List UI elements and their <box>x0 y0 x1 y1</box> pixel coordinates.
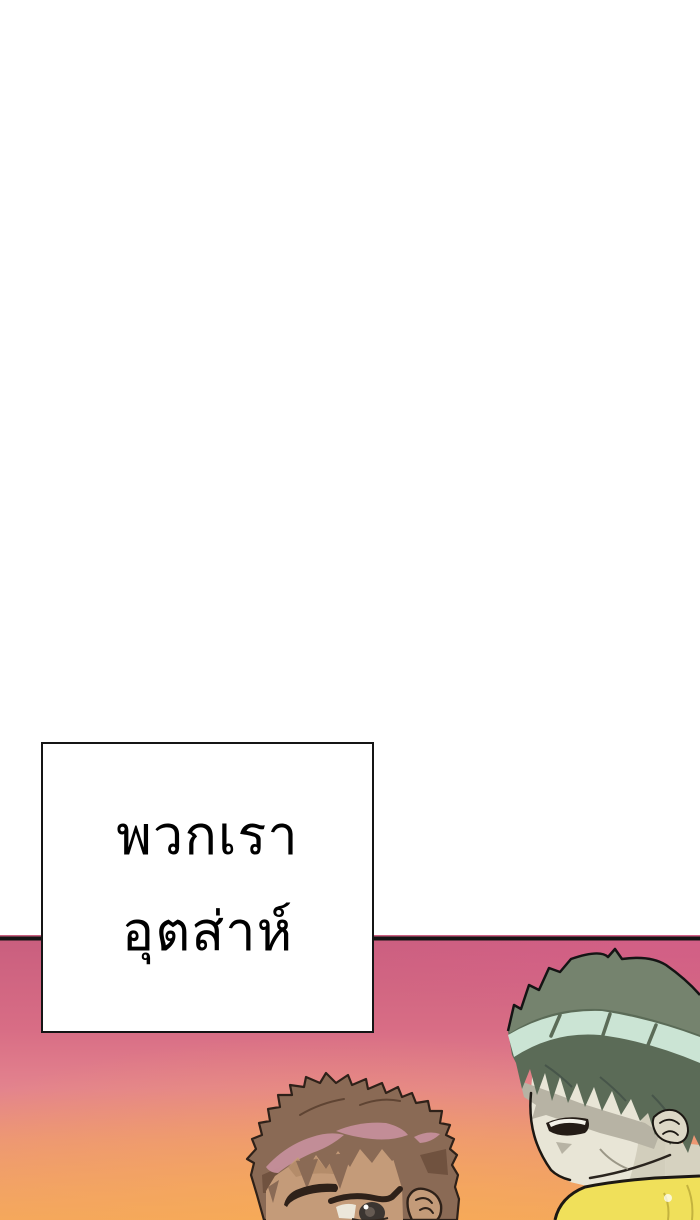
left-eye-white <box>336 1204 356 1219</box>
speech-bubble: พวกเรา อุตส่าห์ <box>41 742 374 1033</box>
dialogue-line-2: อุตส่าห์ <box>122 884 293 980</box>
left-eye-glint <box>364 1205 369 1210</box>
webtoon-page: พวกเรา อุตส่าห์ <box>0 0 700 1220</box>
dialogue-line-1: พวกเรา <box>116 788 298 884</box>
right-shirt-glare <box>664 1194 672 1202</box>
